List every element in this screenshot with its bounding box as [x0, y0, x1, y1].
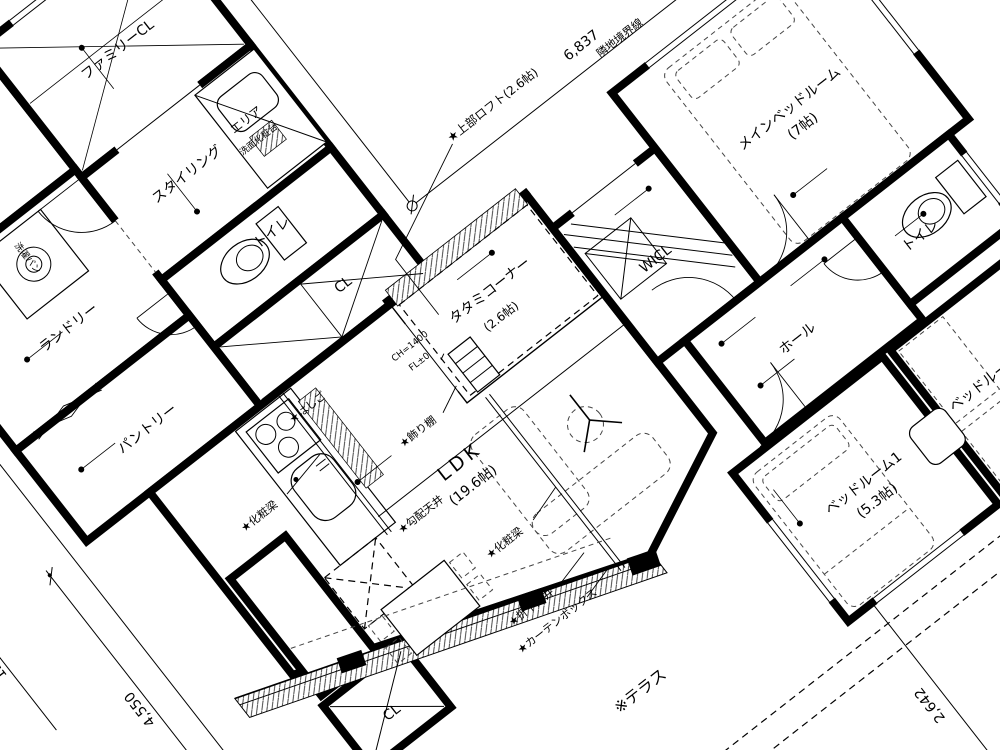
dim-right: 2,642 [911, 684, 948, 725]
dim-left-partial: 15 [0, 659, 11, 683]
floor-plan-drawing: ファミリーCL スタイリング エリア 洗面化粧台 トイレ CL 洗濯パン ランド… [0, 0, 1000, 750]
dim-top: 6,837 [561, 27, 602, 64]
label-loft: ★上部ロフト(2.6帖) [444, 64, 541, 144]
label-boundary: 隣地境界線 [593, 15, 645, 60]
label-terrace: ※テラス [610, 665, 670, 718]
dim-left: 4,550 [122, 688, 159, 729]
floor-plan: ファミリーCL スタイリング エリア 洗面化粧台 トイレ CL 洗濯パン ランド… [0, 0, 1000, 750]
rotated-plan: ファミリーCL スタイリング エリア 洗面化粧台 トイレ CL 洗濯パン ランド… [0, 0, 1000, 750]
